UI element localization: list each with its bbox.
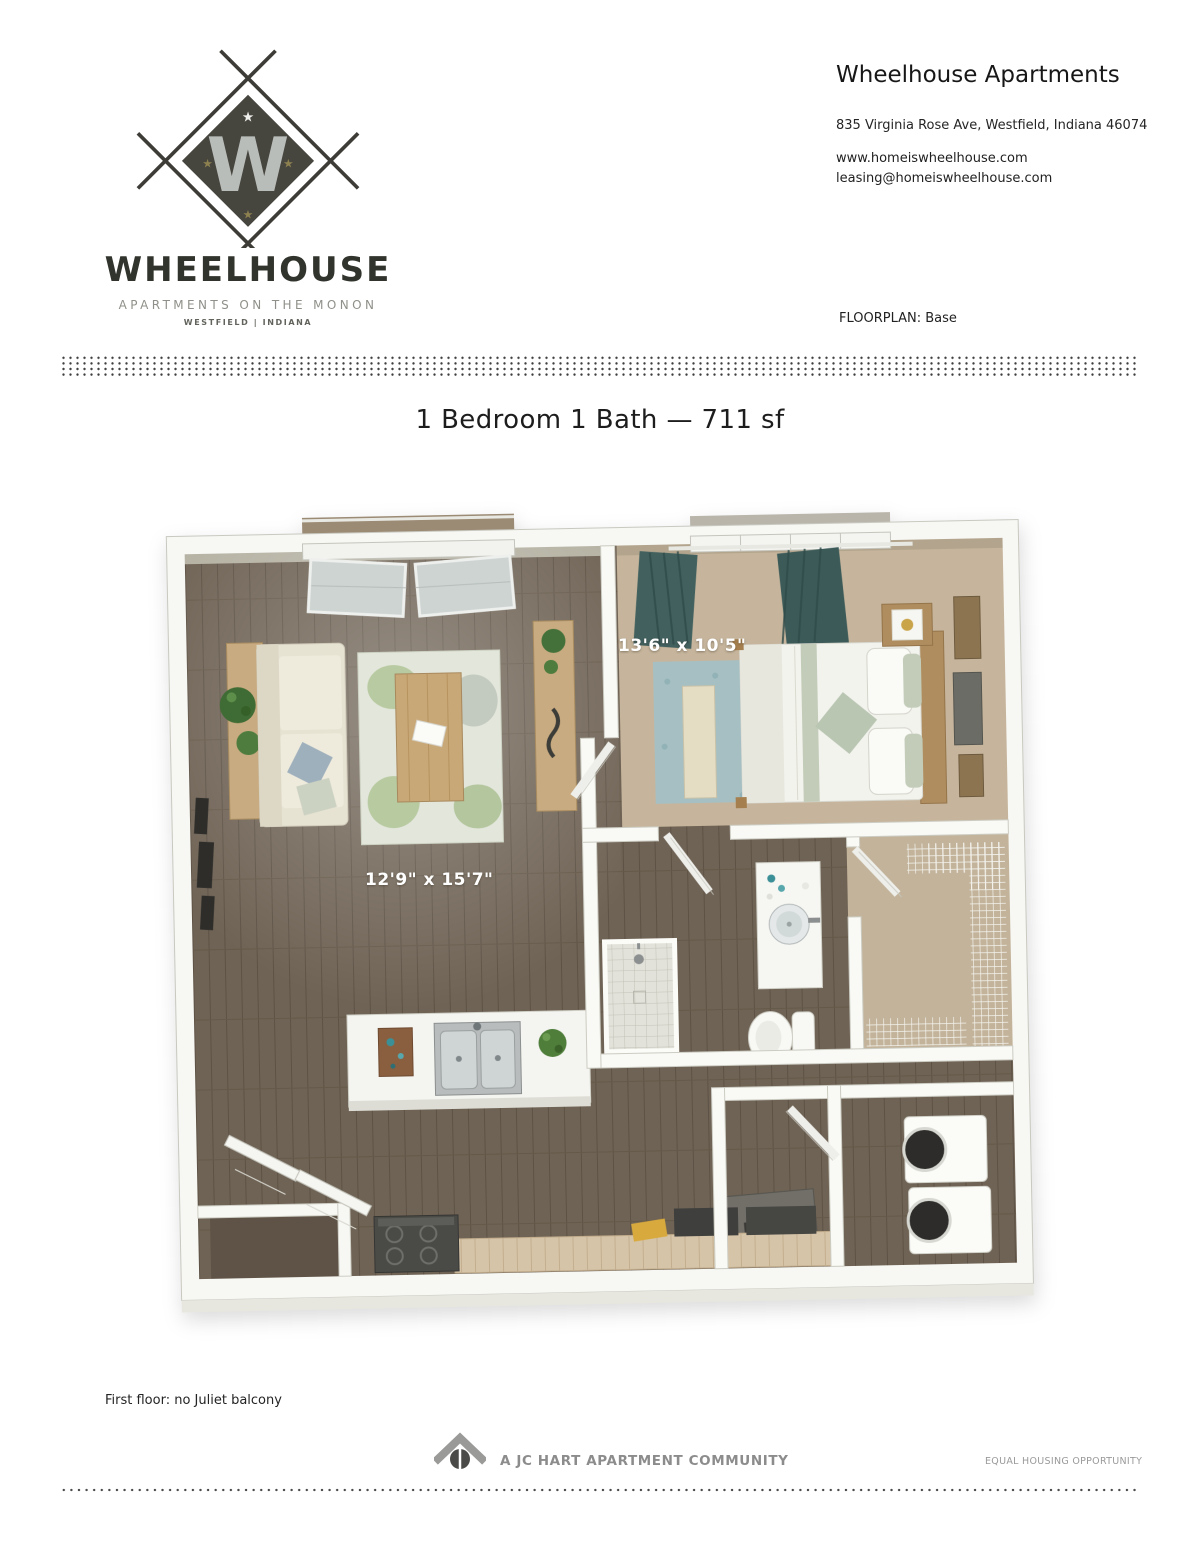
email-link[interactable]: leasing@homeiswheelhouse.com bbox=[836, 171, 1052, 186]
shower bbox=[605, 941, 677, 1052]
dotted-footer-rule bbox=[60, 1487, 1140, 1493]
plan-group: MECH bbox=[166, 504, 1034, 1313]
bed-bench bbox=[682, 686, 716, 799]
cutting-board bbox=[378, 1028, 413, 1077]
pillow bbox=[904, 733, 923, 787]
logo-star-top: ★ bbox=[242, 109, 254, 125]
range bbox=[374, 1215, 459, 1273]
pillow bbox=[903, 654, 922, 708]
page-title: 1 Bedroom 1 Bath — 711 sf bbox=[0, 405, 1200, 435]
living-dimensions: 12'9" x 15'7" bbox=[365, 870, 493, 890]
brand-tagline: APARTMENTS ON THE MONON bbox=[88, 298, 408, 312]
duvet-stripe bbox=[801, 644, 820, 802]
faucet bbox=[808, 918, 820, 923]
company-name: Wheelhouse Apartments bbox=[836, 62, 1120, 88]
vanity bbox=[756, 862, 823, 989]
kitchen-island bbox=[347, 1010, 591, 1111]
entry-closet-floor bbox=[210, 1215, 339, 1279]
appliance bbox=[746, 1206, 817, 1235]
brand-name: WHEELHOUSE bbox=[88, 250, 408, 290]
wheelhouse-logo-mark: W ★ ★ ★ ★ bbox=[128, 48, 368, 248]
equal-housing-label: EQUAL HOUSING OPPORTUNITY bbox=[985, 1456, 1135, 1467]
floorplan-svg: MECH bbox=[152, 489, 1049, 1342]
floorplan-render: MECH bbox=[160, 498, 1040, 1334]
coffee-table bbox=[395, 673, 464, 802]
nightstand bbox=[882, 603, 933, 646]
jchart-house-icon bbox=[434, 1432, 486, 1472]
community-label: A JC HART APARTMENT COMMUNITY bbox=[500, 1453, 789, 1469]
wire-shelf bbox=[969, 842, 1009, 1047]
logo-star-bottom: ★ bbox=[243, 208, 254, 222]
logo-star-left: ★ bbox=[202, 156, 213, 170]
bedroom-dimensions: 13'6" x 10'5" bbox=[618, 636, 746, 656]
sofa bbox=[256, 643, 348, 827]
double-sink bbox=[434, 1022, 521, 1096]
brand-location: WESTFIELD | INDIANA bbox=[88, 318, 408, 327]
dotted-separator bbox=[60, 355, 1138, 377]
appliance bbox=[674, 1207, 739, 1236]
bed bbox=[732, 631, 946, 808]
company-address: 835 Virginia Rose Ave, Westfield, Indian… bbox=[836, 118, 1147, 133]
first-floor-note: First floor: no Juliet balcony bbox=[105, 1393, 282, 1408]
website-link[interactable]: www.homeiswheelhouse.com bbox=[836, 151, 1028, 166]
media-console bbox=[533, 620, 577, 811]
logo-monogram: W bbox=[207, 121, 290, 209]
wheelhouse-logo: W ★ ★ ★ ★ WHEELHOUSE APARTMENTS ON THE M… bbox=[88, 48, 408, 327]
wire-shelf bbox=[866, 1017, 967, 1047]
floorplan-label: FLOORPLAN: Base bbox=[839, 311, 957, 326]
logo-star-right: ★ bbox=[283, 156, 294, 170]
